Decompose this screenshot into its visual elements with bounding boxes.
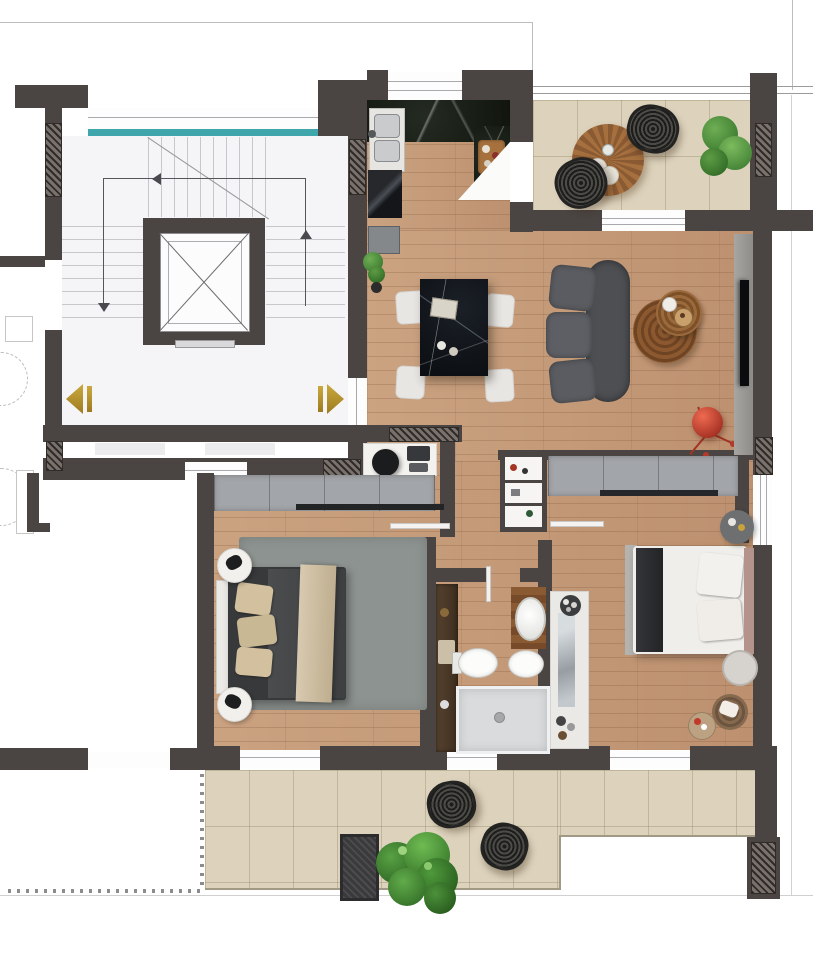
dresser-item: [556, 716, 566, 726]
path-arrow-up: [300, 224, 312, 239]
bidet: [508, 650, 544, 678]
wall-stairhall-left-lower: [45, 330, 62, 427]
window-line: [602, 224, 685, 225]
vanity-item: [440, 608, 449, 617]
shelf-item: [526, 510, 533, 517]
window-line: [602, 218, 685, 219]
bedroom2-side-window: [753, 475, 772, 545]
plant-highlight: [398, 846, 407, 855]
gold-entrance-bar-left: [87, 386, 92, 412]
wall-right-bedroom2: [753, 545, 772, 760]
column-hatch: [350, 140, 365, 194]
shower-drain: [494, 712, 505, 723]
vessel-sink: [515, 597, 546, 641]
food-item: [482, 145, 490, 153]
plant-foliage: [368, 266, 385, 283]
sideboard: [368, 226, 400, 254]
apartment-entry-door-gap: [348, 378, 367, 430]
kitchen-window: [388, 72, 462, 100]
parapet-line: [533, 86, 751, 87]
cup: [449, 347, 458, 356]
plant-highlight: [424, 862, 432, 870]
plant-pot: [371, 282, 382, 293]
column-hatch: [752, 843, 775, 893]
plant-foliage: [388, 868, 426, 906]
roof-outline-right: [792, 0, 793, 90]
wardrobe-front-strip: [296, 504, 444, 510]
column-hatch: [47, 442, 62, 470]
shelf-item: [522, 468, 528, 474]
bed2-headboard: [744, 548, 754, 654]
wall-stairhall-topright-block: [318, 80, 367, 136]
red-floor-lamp: [692, 407, 723, 438]
elevator-door: [175, 340, 235, 348]
wall-bedroom1-left: [197, 473, 214, 760]
neighbour-fixture-outline: [5, 316, 33, 342]
floor-plan-canvas: [0, 0, 813, 960]
vanity-item: [440, 700, 449, 709]
pillow: [696, 598, 743, 642]
parapet-line: [777, 93, 813, 94]
bedroom2-door-leaf: [550, 521, 604, 527]
bedroom1-door-leaf: [390, 523, 450, 529]
bed2-foot-throw: [636, 548, 663, 652]
stair-path-line: [103, 178, 104, 308]
window-line: [388, 81, 462, 82]
dresser-item: [567, 723, 575, 731]
wall-stairhall-bottom-upper: [43, 425, 347, 442]
wall-neighbour-left-stub: [27, 523, 50, 532]
window-line: [766, 475, 767, 545]
printer: [407, 446, 430, 461]
sofa-seat: [548, 264, 598, 313]
sink-bowl: [374, 114, 400, 138]
cup: [571, 602, 577, 608]
kitchen-lower-cabinet: [368, 170, 402, 218]
roof-outline-top: [0, 22, 533, 23]
column-hatch: [46, 124, 61, 196]
stair-path-line: [305, 178, 306, 306]
nightstand: [720, 510, 754, 544]
tv-screen: [740, 280, 749, 386]
bedroom2-window: [610, 750, 690, 768]
faucet: [368, 130, 376, 138]
parapet-line: [533, 93, 751, 94]
sink-bowl: [374, 140, 400, 162]
window-line: [760, 475, 761, 545]
column-hatch: [756, 124, 771, 176]
terrace-edge-step: [559, 835, 561, 890]
neighbour-door-swing-arc: [0, 352, 28, 406]
railing-balusters-vertical: [200, 774, 204, 888]
cup: [437, 341, 446, 350]
pillow: [235, 646, 273, 677]
window-line: [610, 757, 690, 758]
roof-outline-corner: [532, 22, 533, 72]
tray-item: [701, 724, 707, 730]
entry-door-line: [356, 378, 357, 430]
terrace-edge-line: [560, 835, 755, 837]
table-tray: [430, 297, 458, 319]
path-arrow-down: [98, 303, 110, 318]
window-line: [240, 757, 320, 758]
gold-entrance-bar-right: [318, 386, 323, 412]
shelf-board: [505, 503, 542, 506]
wall-terrace-living-left: [510, 210, 602, 231]
tray-item: [694, 718, 701, 725]
cup: [566, 607, 571, 612]
wall-kitchen-top-left: [367, 70, 388, 102]
parapet-line: [777, 86, 813, 87]
sofa-seat: [548, 358, 598, 405]
cup: [602, 144, 614, 156]
window-line: [388, 90, 462, 91]
wall-neighbour-left: [27, 473, 39, 530]
bathroom-door-leaf: [486, 566, 491, 602]
dresser-item: [558, 731, 567, 740]
plate: [662, 297, 677, 312]
wall-neighbour-bottom-2: [170, 748, 197, 770]
wall-terrace-living-right: [685, 210, 813, 231]
doormat: [205, 443, 275, 455]
dining-chair: [484, 293, 516, 328]
window-line: [185, 470, 247, 471]
plant-foliage: [700, 148, 728, 176]
shelf-item: [510, 464, 517, 471]
stairhall-window-line: [88, 117, 318, 118]
nightstand-item: [728, 518, 736, 526]
nightstand-item: [738, 524, 745, 531]
doormat: [95, 443, 165, 455]
dining-table: [420, 279, 488, 376]
cup: [563, 599, 569, 605]
railing-balusters-horizontal: [8, 889, 200, 893]
shelf-item: [511, 489, 520, 496]
shelf-board: [505, 480, 542, 483]
terrace-edge-line: [205, 888, 561, 890]
stairhall-window: [88, 108, 318, 129]
wall-bottom-1: [197, 746, 240, 770]
neighbour-window: [88, 752, 170, 768]
slatted-mat: [340, 834, 379, 901]
wardrobe-front-strip: [600, 490, 718, 496]
pillow: [696, 552, 744, 598]
wall-neighbour-bottom: [0, 748, 88, 770]
toilet: [458, 648, 498, 678]
office-chair: [372, 449, 399, 476]
pillow: [236, 614, 277, 648]
living-terrace-glass-door: [602, 210, 685, 231]
wall-stairhall-topleft: [15, 85, 88, 108]
food-item: [680, 313, 685, 318]
column-hatch: [756, 438, 772, 474]
pillow: [234, 582, 274, 617]
sofa-seat: [546, 312, 592, 358]
wall-corridor-stub: [0, 256, 45, 267]
dining-chair: [484, 368, 515, 402]
terrace-bottom-floor-right: [560, 770, 755, 835]
stair-path-line: [103, 178, 305, 179]
bed1-throw: [296, 564, 337, 702]
teal-window-strip: [88, 129, 319, 136]
column-hatch: [390, 428, 458, 441]
wall-bottom-2: [320, 746, 447, 770]
desk-equipment: [409, 463, 428, 472]
wall-terrace-left-upper: [510, 72, 533, 142]
path-arrow-left: [146, 173, 161, 185]
bedroom1-window: [240, 750, 320, 768]
nightstand: [722, 650, 758, 686]
plant-foliage: [424, 882, 456, 914]
dresser-mirror: [558, 613, 575, 707]
wall-bathroom-top-left: [436, 568, 486, 582]
wall-bottom-4: [690, 746, 777, 770]
wall-terrace-bottom-right: [755, 770, 777, 837]
window-line: [447, 757, 497, 758]
